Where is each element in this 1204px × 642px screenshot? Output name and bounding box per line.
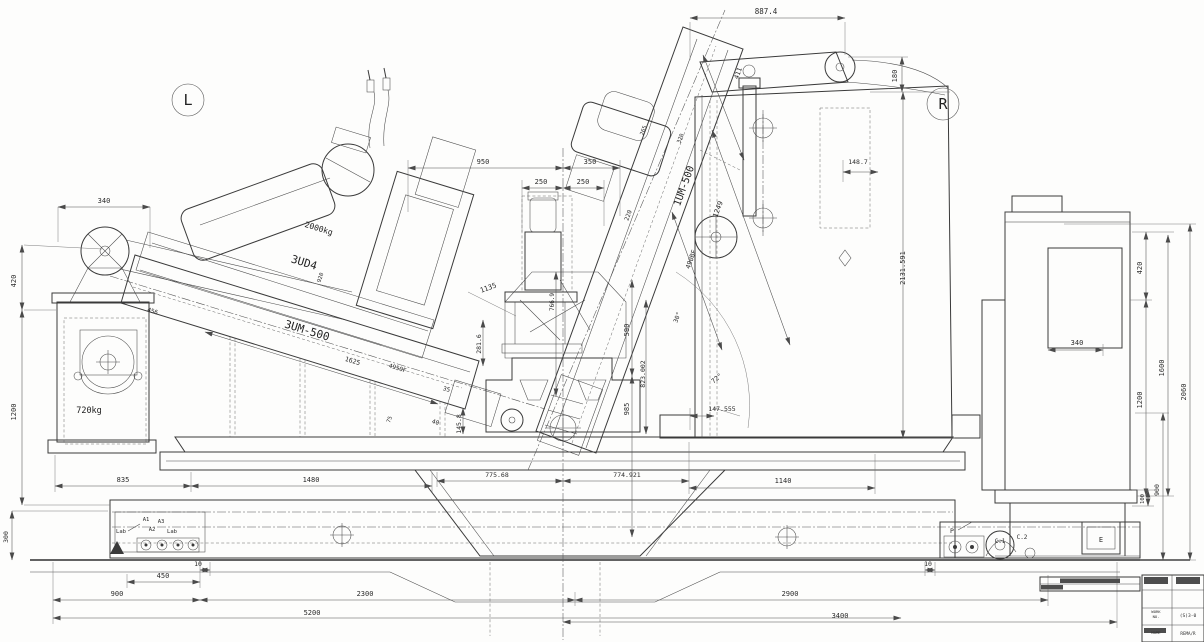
dim-250-b: 250 xyxy=(577,178,590,186)
dim-1200-left: 1200 xyxy=(10,404,18,421)
dim-30deg: 30° xyxy=(672,311,682,324)
dim-10-right: 10 xyxy=(924,560,932,568)
dim-1249: 1249 xyxy=(711,200,724,219)
tb-name-label: NAME xyxy=(1151,630,1161,635)
dim-340-right: 340 xyxy=(1071,339,1084,347)
dim-590: 590 xyxy=(623,324,631,337)
view-markers xyxy=(172,84,959,120)
right-unit-1um500 xyxy=(528,10,980,470)
dim-450: 450 xyxy=(157,572,170,580)
dim-420-right: 420 xyxy=(1136,262,1144,275)
label-720kg: 720kg xyxy=(76,406,102,416)
label-c2: C.2 xyxy=(1017,534,1028,541)
dim-147-555: 147.555 xyxy=(708,405,735,413)
view-label-left: L xyxy=(183,91,192,109)
dim-2060: 2060 xyxy=(1180,384,1188,401)
dim-887-4: 887.4 xyxy=(755,7,778,16)
dim-1600: 1600 xyxy=(1158,360,1166,377)
dim-320: 320 xyxy=(677,133,686,144)
dim-300-left: 300 xyxy=(2,531,10,543)
dim-148-7: 148.7 xyxy=(848,158,868,166)
dim-281-6: 281.6 xyxy=(475,334,483,354)
drawing-sheet: LR887.41804112131.591148.71UM-5001249490… xyxy=(0,0,1204,642)
tb-name-value: REMA/R xyxy=(1180,631,1196,636)
dim-5200: 5200 xyxy=(304,609,321,617)
dim-2900: 2900 xyxy=(782,590,799,598)
dim-2131-591: 2131.591 xyxy=(899,251,907,285)
label-c1: C.1 xyxy=(995,538,1006,545)
label-e: E xyxy=(1099,536,1103,544)
dim-835: 835 xyxy=(117,476,130,484)
title-block xyxy=(1040,575,1204,642)
dim-100-right: 100 xyxy=(1140,494,1146,504)
dim-985: 985 xyxy=(623,403,631,416)
dim-420-left: 420 xyxy=(10,275,18,288)
dim-75: 75 xyxy=(386,416,394,424)
dim-1200-right: 1200 xyxy=(1136,392,1144,409)
tb-work-no-label: NO. xyxy=(1153,614,1160,619)
dim-1140: 1140 xyxy=(775,477,792,485)
dim-72deg: 72° xyxy=(710,372,724,386)
engineering-drawing-svg: LR887.41804112131.591148.71UM-5001249490… xyxy=(0,0,1204,642)
dim-35: 35 xyxy=(442,385,451,394)
label-p: P xyxy=(950,527,954,535)
dim-4950f: 4950F xyxy=(388,363,408,375)
dim-900: 900 xyxy=(111,590,124,598)
anchor-a2: A2 xyxy=(149,527,156,533)
anchor-lab-left: Lab xyxy=(116,529,126,535)
dim-180: 180 xyxy=(891,70,899,83)
dim-1625: 1625 xyxy=(344,355,361,367)
dim-2300: 2300 xyxy=(357,590,374,598)
dim-145-8: 145.8 xyxy=(455,414,463,434)
anchor-lab-right: Lab xyxy=(167,529,177,535)
dim-350: 350 xyxy=(584,158,597,166)
dim-823-002: 823.002 xyxy=(639,360,647,387)
dim-250-a: 250 xyxy=(535,178,548,186)
dim-40: 40 xyxy=(431,418,440,427)
right-cabinet xyxy=(982,196,1140,556)
view-label-right: R xyxy=(938,95,948,113)
anchor-a1: A1 xyxy=(143,517,150,523)
dim-900-right: 900 xyxy=(1153,484,1161,496)
dim-774-921: 774.921 xyxy=(613,471,640,479)
dim-1135: 1135 xyxy=(479,281,498,294)
dim-456: 456 xyxy=(146,307,159,317)
dim-775-68: 775.68 xyxy=(485,471,509,479)
dim-220: 220 xyxy=(623,209,633,222)
left-unit-3um500 xyxy=(110,68,545,437)
dim-920: 920 xyxy=(317,272,326,283)
label-2000kg: 2000kg xyxy=(304,220,334,237)
dim-10-left: 10 xyxy=(194,560,202,568)
dim-766-9: 766.9 xyxy=(549,293,556,311)
tb-work-value: (S)3-0 xyxy=(1180,613,1197,619)
dim-950: 950 xyxy=(477,158,490,166)
dim-1480: 1480 xyxy=(303,476,320,484)
dim-3400: 3400 xyxy=(832,612,849,620)
label-3ud4: 3UD4 xyxy=(289,253,318,273)
dim-340-left: 340 xyxy=(98,197,111,205)
anchor-a3: A3 xyxy=(158,519,165,525)
